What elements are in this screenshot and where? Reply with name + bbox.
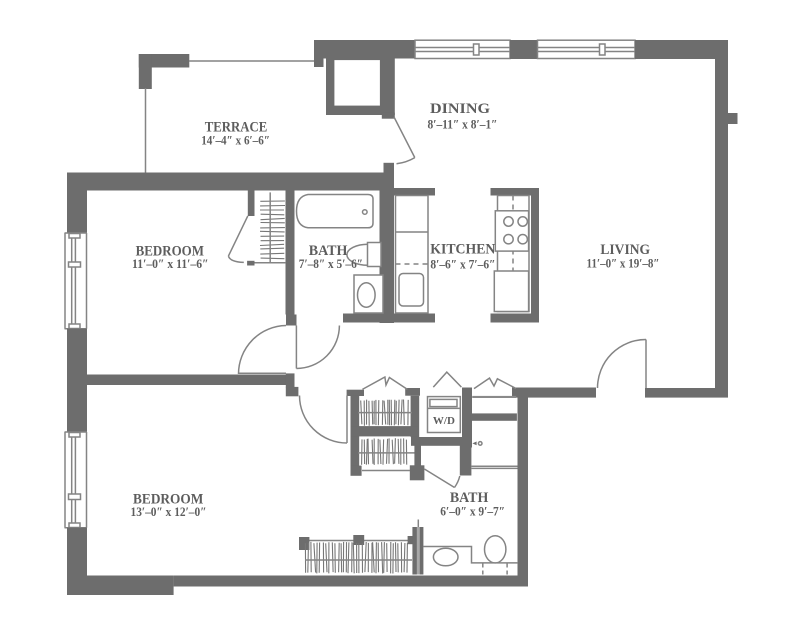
svg-text:11′–0″ x 11′–6″: 11′–0″ x 11′–6″ [132,257,209,271]
svg-text:W/D: W/D [433,415,455,427]
svg-text:8′–6″ x 7′–6″: 8′–6″ x 7′–6″ [430,257,495,271]
svg-text:6′–0″ x 9′–7″: 6′–0″ x 9′–7″ [440,504,505,518]
svg-text:14′–4″ x 6′–6″: 14′–4″ x 6′–6″ [201,134,270,148]
svg-text:DINING: DINING [430,101,490,117]
svg-text:13′–0″ x 12′–0″: 13′–0″ x 12′–0″ [131,505,207,519]
svg-text:7′–8″ x 5′–6″: 7′–8″ x 5′–6″ [299,257,363,271]
svg-text:8′–11″ x 8′–1″: 8′–11″ x 8′–1″ [428,117,498,131]
svg-text:KITCHEN: KITCHEN [430,241,495,257]
svg-text:11′–0″ x 19′–8″: 11′–0″ x 19′–8″ [587,256,660,270]
